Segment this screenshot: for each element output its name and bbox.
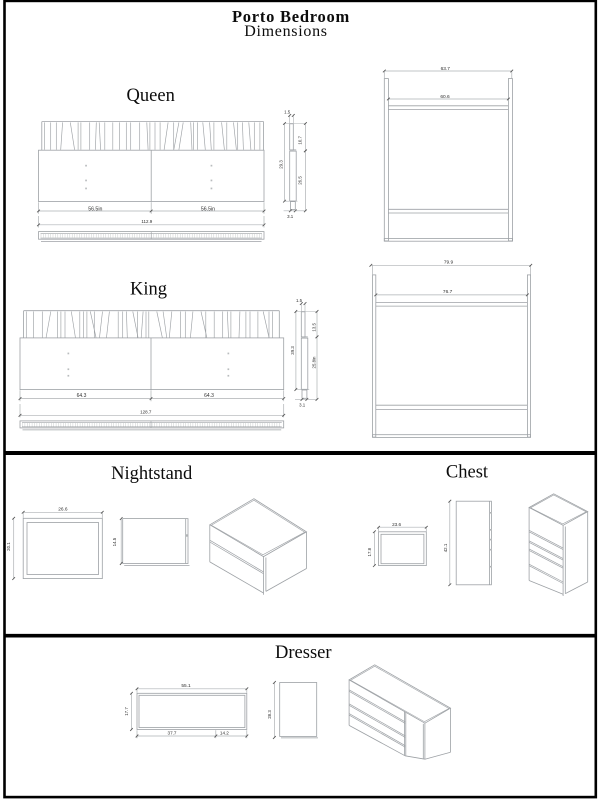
svg-text:13.5: 13.5 (311, 322, 316, 331)
svg-text:King: King (130, 280, 167, 300)
svg-text:1.5: 1.5 (296, 298, 303, 303)
svg-text:42.1: 42.1 (443, 543, 448, 552)
svg-text:Nightstand: Nightstand (111, 464, 193, 484)
svg-text:128.7: 128.7 (140, 410, 152, 415)
svg-text:28.3: 28.3 (267, 710, 272, 719)
svg-text:1.5: 1.5 (284, 110, 291, 115)
svg-text:14.2: 14.2 (220, 731, 229, 736)
svg-text:55.1: 55.1 (181, 683, 191, 689)
svg-text:37.7: 37.7 (168, 731, 177, 736)
svg-text:64.3: 64.3 (204, 393, 214, 399)
svg-text:76.7: 76.7 (443, 289, 453, 295)
svg-text:56.5in: 56.5in (88, 206, 102, 212)
svg-text:60.6: 60.6 (440, 94, 450, 100)
svg-text:79.9: 79.9 (444, 260, 454, 266)
svg-text:10.7: 10.7 (298, 135, 303, 144)
svg-text:26.6: 26.6 (58, 506, 68, 512)
svg-text:63.7: 63.7 (441, 66, 451, 72)
svg-text:3.1: 3.1 (299, 402, 306, 407)
svg-text:39.3: 39.3 (290, 346, 295, 355)
svg-text:Chest: Chest (446, 463, 489, 483)
svg-text:17.8: 17.8 (367, 547, 372, 556)
svg-text:64.3: 64.3 (77, 393, 87, 399)
svg-text:112.9: 112.9 (141, 219, 152, 224)
svg-text:56.5in: 56.5in (201, 206, 215, 212)
svg-text:17.7: 17.7 (124, 707, 129, 716)
svg-text:26.5: 26.5 (298, 176, 303, 185)
svg-text:29.3: 29.3 (279, 160, 284, 169)
svg-text:Queen: Queen (127, 86, 175, 106)
svg-text:Dimensions: Dimensions (244, 23, 327, 40)
svg-text:3.1: 3.1 (287, 214, 294, 219)
svg-text:Dresser: Dresser (275, 643, 332, 663)
svg-text:14.5: 14.5 (112, 537, 117, 546)
svg-text:23.6: 23.6 (392, 522, 401, 527)
svg-text:20.1: 20.1 (6, 542, 11, 551)
svg-text:25.8in: 25.8in (311, 356, 316, 369)
